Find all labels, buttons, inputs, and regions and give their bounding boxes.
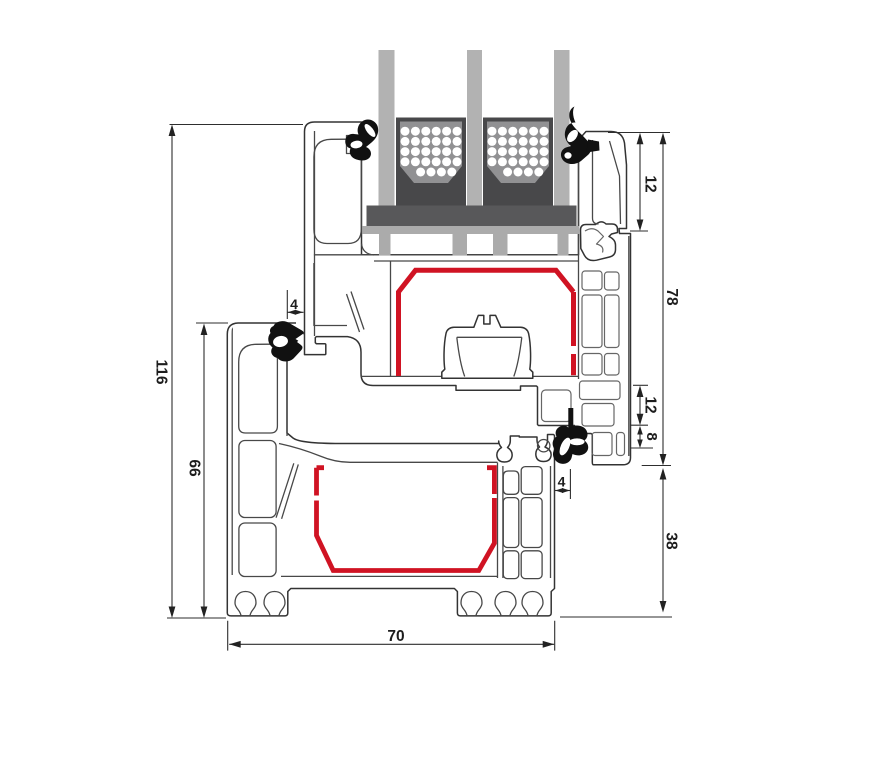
svg-text:4: 4 bbox=[558, 474, 566, 490]
svg-text:12: 12 bbox=[642, 175, 659, 192]
svg-text:38: 38 bbox=[663, 532, 680, 550]
svg-text:116: 116 bbox=[153, 359, 170, 384]
svg-text:4: 4 bbox=[290, 296, 298, 312]
svg-text:70: 70 bbox=[387, 628, 404, 645]
svg-text:12: 12 bbox=[642, 396, 659, 413]
svg-text:78: 78 bbox=[663, 288, 680, 306]
svg-text:66: 66 bbox=[186, 459, 203, 477]
svg-text:8: 8 bbox=[643, 432, 660, 440]
